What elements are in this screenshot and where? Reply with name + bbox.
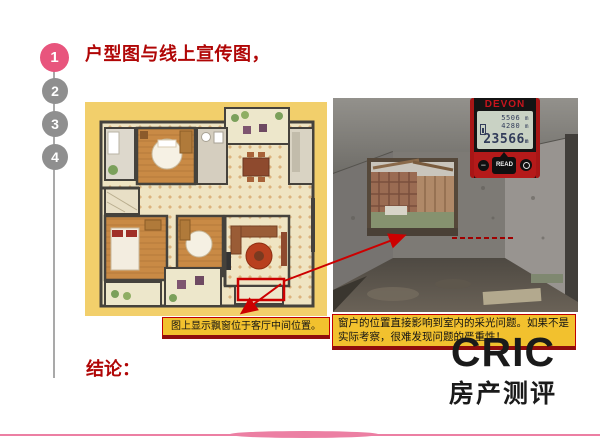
- step-badge-4: 4: [42, 144, 68, 170]
- logo-brand-text: CRIC: [438, 332, 568, 373]
- plan-balcony-bottom-left: [105, 282, 161, 306]
- plan-closet: [105, 188, 139, 214]
- plan-bedroom-top: [137, 128, 195, 184]
- step-rail-line: [53, 57, 55, 378]
- device-keypad: − READ: [474, 152, 536, 178]
- lcd-reading-2: 4280 m: [501, 123, 529, 130]
- read-key: READ: [492, 157, 516, 174]
- cric-logo: CRIC 房产测评: [438, 332, 568, 410]
- plan-balcony-top: [225, 108, 289, 144]
- plan-balcony-bottom-middle: [165, 268, 221, 306]
- lcd-main-reading: 23566m: [483, 132, 529, 147]
- laser-measurer: DEVON 5506 m 4280 m 23566m − READ: [470, 98, 540, 178]
- plan-bath-2: [197, 128, 227, 184]
- plan-living-room: [225, 216, 289, 286]
- plan-kitchen: [289, 128, 313, 184]
- caption-bay-window: 图上显示飘窗位于客厅中间位置。: [162, 317, 330, 339]
- step-number: 3: [51, 116, 59, 132]
- step-badge-3: 3: [42, 111, 68, 137]
- lcd-reading-1: 5506 m: [501, 115, 529, 122]
- plan-bay-window: [235, 286, 283, 304]
- device-brand-label: DEVON: [474, 98, 536, 111]
- power-key-icon: [520, 159, 532, 171]
- step-number: 4: [51, 149, 59, 165]
- bottom-wave-bulge: [229, 431, 379, 438]
- plan-bath-1: [105, 128, 135, 180]
- device-lcd-screen: 5506 m 4280 m 23566m: [477, 111, 533, 149]
- plan-master-bedroom: [105, 216, 167, 280]
- site-photo-drawing: [333, 98, 578, 312]
- slide-canvas: 1 2 3 4 户型图与线上宣传图，: [0, 0, 600, 439]
- floorplan-drawing: [85, 102, 327, 316]
- step-badge-1: 1: [40, 43, 69, 72]
- photo-window: [367, 158, 458, 236]
- site-photo-image: [333, 98, 578, 312]
- conclusion-label: 结论：: [86, 355, 140, 381]
- logo-subtitle-text: 房产测评: [438, 374, 568, 410]
- floorplan-image: [85, 102, 327, 316]
- step-number: 1: [50, 49, 58, 66]
- slide-title: 户型图与线上宣传图，: [85, 40, 270, 66]
- minus-key: −: [478, 160, 489, 171]
- step-badge-2: 2: [42, 78, 68, 104]
- step-number: 2: [51, 83, 59, 99]
